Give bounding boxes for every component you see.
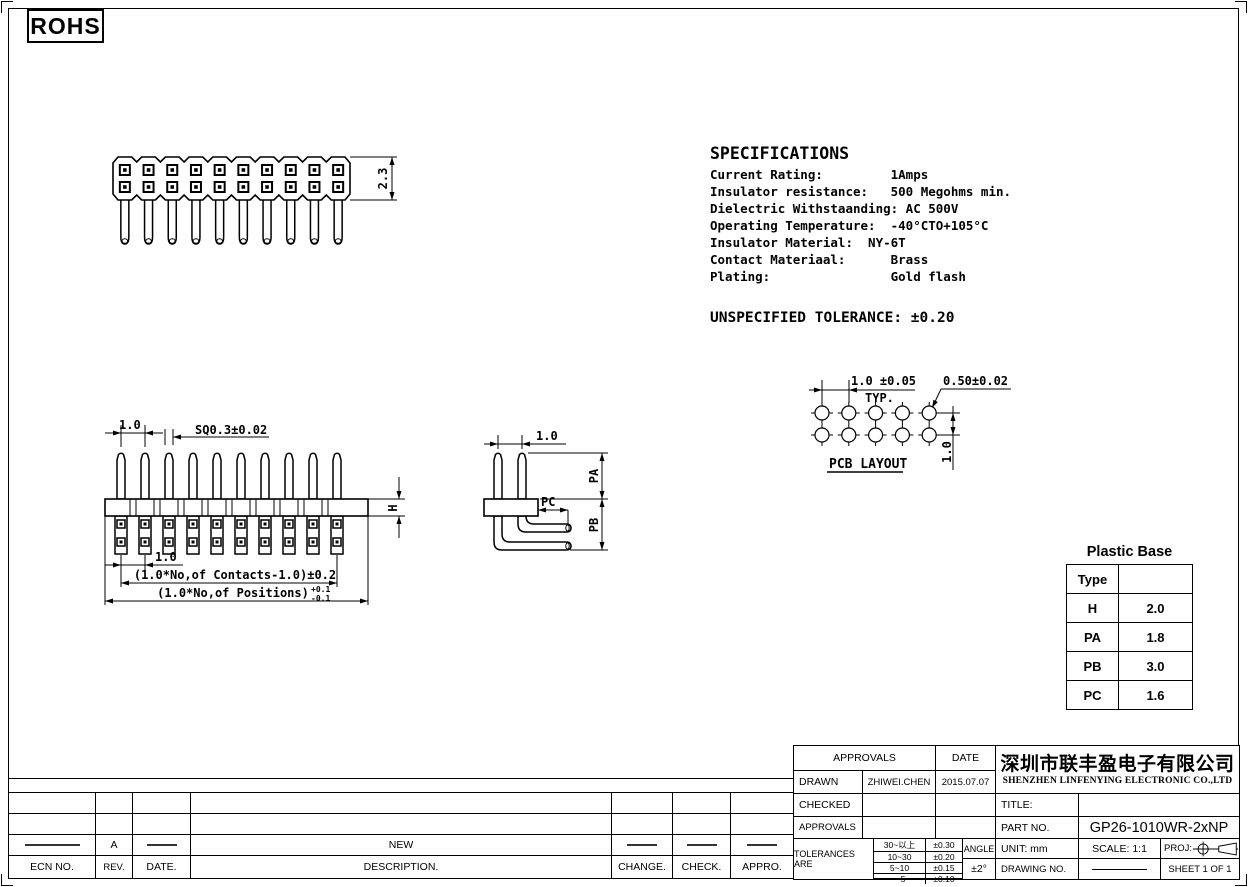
dimension-arrow	[145, 431, 153, 436]
insulator-base	[484, 499, 538, 516]
pin-end-center	[336, 541, 339, 544]
drill-hole	[815, 428, 829, 442]
dim-hole-pitch: 1.0 ±0.05	[851, 374, 916, 388]
spec-line: Current Rating: 1Amps	[710, 166, 1011, 183]
pin	[121, 198, 129, 244]
revision-table: A NEW ECN NO. REV. DATE. DESCRIPTION. CH…	[8, 778, 794, 879]
title-block: APPROVALS DATE DRAWN ZHIWEI.CHEN 2015.07…	[793, 745, 1239, 879]
pin	[287, 198, 295, 244]
dimension-arrow	[121, 581, 129, 586]
param-name: H	[1067, 594, 1119, 623]
pin-hole-center	[265, 185, 269, 189]
top-view: 2.3	[100, 143, 420, 268]
sheet-cell: SHEET 1 OF 1	[1160, 858, 1240, 880]
pin-tip	[217, 239, 223, 243]
param-value: 3.0	[1119, 652, 1193, 681]
checked-label: CHECKED	[793, 793, 863, 817]
title-value	[1078, 793, 1240, 817]
bent-pin-front	[518, 516, 571, 532]
pin-end-center	[120, 541, 123, 544]
checked-date	[935, 793, 996, 817]
tolerance-range: 5~10	[874, 863, 926, 874]
pin-end-center	[144, 541, 147, 544]
revision-check-line	[673, 835, 731, 856]
pin-hole-center	[218, 185, 222, 189]
dimension-arrow	[397, 491, 402, 499]
dim-pin-square: SQ0.3±0.02	[195, 423, 267, 437]
tolerance-range: 10~30	[874, 852, 926, 863]
pin-tip	[241, 239, 247, 243]
dim-pitch-top: 1.0	[119, 418, 141, 432]
pin-end-center	[336, 523, 339, 526]
revision-header-description: DESCRIPTION.	[191, 856, 612, 878]
pin	[309, 453, 317, 499]
revision-rev-value: A	[96, 835, 133, 856]
proj-cell: PROJ:	[1160, 838, 1240, 859]
revision-cell	[673, 793, 731, 814]
tolerance-value: ±0.10	[926, 874, 962, 884]
pin	[285, 453, 293, 499]
revision-cell	[9, 814, 96, 835]
company-cell: 深圳市联丰盈电子有限公司 SHENZHEN LINFENYING ELECTRO…	[995, 745, 1240, 794]
angle-label: ANGLE	[962, 838, 996, 859]
revision-header-appro: APPRO.	[731, 856, 793, 878]
pin-tip	[122, 239, 128, 243]
dim-pc: PC	[541, 495, 555, 509]
drill-hole	[815, 406, 829, 420]
revision-header-check: CHECK.	[673, 856, 731, 878]
pin-hole-center	[289, 168, 293, 172]
pin-hole-center	[170, 168, 174, 172]
pin-end-center	[288, 541, 291, 544]
company-name-cn: 深圳市联丰盈电子有限公司	[1000, 753, 1234, 776]
table-row: PB 3.0	[1067, 652, 1193, 681]
drill-hole	[922, 406, 936, 420]
pin-hole-center	[147, 185, 151, 189]
side-view: 1.0 PA PB PC	[462, 413, 627, 573]
pin-end-center	[240, 523, 243, 526]
revision-cell	[96, 814, 133, 835]
plastic-base-title: Plastic Base	[1066, 544, 1193, 560]
table-row: H 2.0	[1067, 594, 1193, 623]
dim-positions: (1.0*No,of Positions)	[157, 586, 309, 600]
pin-end-center	[216, 523, 219, 526]
dimension-arrow	[951, 413, 956, 421]
param-name: PA	[1067, 623, 1119, 652]
revision-cell	[673, 814, 731, 835]
param-value: 1.8	[1119, 623, 1193, 652]
part-no-label: PART NO.	[995, 816, 1079, 839]
spec-line: Insulator resistance: 500 Megohms min.	[710, 183, 1011, 200]
revision-header-rev: REV.	[96, 856, 133, 878]
plastic-base-table: Plastic Base Type H 2.0 PA 1.8 PB 3.0 PC…	[1066, 544, 1193, 710]
revision-cell	[612, 814, 673, 835]
revision-change-line	[612, 835, 673, 856]
dimension-arrow	[849, 388, 857, 393]
pin-hole-center	[336, 185, 340, 189]
dim-hole-diameter: 0.50±0.02	[943, 374, 1008, 388]
pin-tip	[193, 239, 199, 243]
spec-line: Operating Temperature: -40°CTO+105°C	[710, 217, 1011, 234]
tolerance-value: ±0.15	[926, 863, 962, 874]
pin-hole-center	[265, 168, 269, 172]
first-angle-projection-icon	[1193, 839, 1239, 859]
pin	[333, 453, 341, 499]
unit-cell: UNIT: mm	[995, 838, 1079, 859]
revision-cell	[731, 793, 793, 814]
pin-tip	[566, 543, 569, 549]
rohs-badge: ROHS	[27, 9, 104, 43]
tolerance-value: ±0.30	[926, 839, 962, 852]
pin-end-center	[120, 523, 123, 526]
pin-hole-center	[313, 185, 317, 189]
top-view-drawing	[113, 157, 397, 244]
pin-tip	[312, 239, 318, 243]
pin-end-center	[216, 541, 219, 544]
param-value	[1119, 565, 1193, 594]
table-row: PA 1.8	[1067, 623, 1193, 652]
pin-end-center	[264, 541, 267, 544]
pin-hole-center	[313, 168, 317, 172]
pin-end-center	[168, 541, 171, 544]
dim-positions-tol-lower: -0.1	[311, 594, 330, 603]
table-row: Type	[1067, 565, 1193, 594]
drill-hole	[869, 406, 883, 420]
title-label: TITLE:	[995, 793, 1079, 817]
dimension-arrow	[390, 192, 395, 200]
pin-hole-center	[147, 168, 151, 172]
pin-hole-center	[242, 168, 246, 172]
pin-end-center	[312, 541, 315, 544]
insulator-body	[113, 157, 350, 200]
pin	[261, 453, 269, 499]
pin	[165, 453, 173, 499]
dimension-arrow	[397, 516, 402, 524]
dim-contacts: (1.0*No,of Contacts-1.0)±0.2	[134, 568, 336, 582]
drawn-by: ZHIWEI.CHEN	[862, 770, 936, 794]
pin	[518, 453, 526, 499]
drawn-label: DRAWN	[793, 770, 863, 794]
revision-appro-line	[731, 835, 793, 856]
dimension-arrow	[360, 599, 368, 604]
pin-end-center	[240, 541, 243, 544]
revision-cell	[133, 814, 191, 835]
checked-by	[862, 793, 936, 817]
drawing-no-placeholder-line	[1092, 869, 1147, 870]
dim-pitch-bottom: 1.0	[155, 550, 177, 564]
revision-cell	[9, 793, 96, 814]
revision-header-change: CHANGE.	[612, 856, 673, 878]
pin-tip	[566, 525, 569, 531]
pin	[263, 198, 271, 244]
dim-pa: PA	[587, 468, 601, 483]
drawing-no-label: DRAWING NO.	[995, 858, 1079, 880]
pin-hole-center	[123, 185, 127, 189]
drill-hole	[842, 406, 856, 420]
pin-hole-center	[194, 168, 198, 172]
dim-pb: PB	[587, 518, 601, 532]
dimension-arrow	[145, 563, 153, 568]
revision-header-date: DATE.	[133, 856, 191, 878]
dimension-arrow	[951, 427, 956, 435]
pcb-layout-title: PCB LAYOUT	[829, 457, 907, 472]
approvals-header: APPROVALS	[793, 745, 936, 771]
revision-cell	[731, 814, 793, 835]
dim-hole-row-pitch: 1.0	[940, 441, 954, 463]
pin-tip	[335, 239, 341, 243]
pin	[117, 453, 125, 499]
proj-label: PROJ:	[1164, 843, 1192, 854]
corner-mark-top-left	[1, 1, 13, 13]
param-name: PB	[1067, 652, 1119, 681]
bent-pin-back	[494, 516, 571, 550]
pcb-layout-view: 1.0 ±0.05 TYP. 0.50±0.02 1.0 PCB LAYOUT	[793, 372, 1018, 490]
dim-body-height: 2.3	[376, 168, 390, 190]
revision-empty-band	[9, 779, 793, 793]
drawing-sheet: ROHS SPECIFICATIONS Current Rating: 1Amp…	[0, 0, 1248, 887]
drill-hole	[842, 428, 856, 442]
corner-mark-top-right	[1235, 1, 1247, 13]
pin-hole-center	[218, 168, 222, 172]
spec-line: Contact Materiaal: Brass	[710, 251, 1011, 268]
tolerance-range: ~ 5	[874, 874, 926, 884]
angle-value: ±2°	[962, 858, 996, 880]
date-header: DATE	[935, 745, 996, 771]
dim-hole-pitch-note: TYP.	[865, 391, 894, 405]
drawn-date: 2015.07.07	[935, 770, 996, 794]
revision-date-line	[133, 835, 191, 856]
pin	[213, 453, 221, 499]
pin	[141, 453, 149, 499]
dimension-arrow	[105, 599, 113, 604]
tolerance-range: 30~以上	[874, 839, 926, 852]
pin-hole-center	[336, 168, 340, 172]
drill-hole	[895, 406, 909, 420]
revision-header-ecn: ECN NO.	[9, 856, 96, 878]
revision-cell	[191, 814, 612, 835]
drill-hole	[869, 428, 883, 442]
revision-cell	[191, 793, 612, 814]
pin-end-center	[264, 523, 267, 526]
dimension-arrow	[173, 435, 181, 440]
param-name: Type	[1067, 565, 1119, 594]
pin-end-center	[192, 541, 195, 544]
approvals-label: APPROVALS	[793, 816, 863, 839]
tolerance-value: ±0.20	[926, 852, 962, 863]
revision-description-value: NEW	[191, 835, 612, 856]
pin-hole-center	[242, 185, 246, 189]
table-row: PC 1.6	[1067, 681, 1193, 710]
pin-end-center	[288, 523, 291, 526]
approvals-by	[862, 816, 936, 839]
pin-end-center	[312, 523, 315, 526]
param-value: 2.0	[1119, 594, 1193, 623]
dimension-arrow	[814, 388, 822, 393]
unspecified-tolerance-note: UNSPECIFIED TOLERANCE: ±0.20	[710, 310, 954, 326]
dim-positions-tol-upper: +0.1	[311, 585, 330, 594]
revision-cell	[96, 793, 133, 814]
dimension-arrow	[113, 563, 121, 568]
pin	[494, 453, 502, 499]
dim-row-pitch: 1.0	[536, 429, 558, 443]
pin	[237, 453, 245, 499]
param-value: 1.6	[1119, 681, 1193, 710]
insulator-base	[105, 499, 368, 516]
pin	[216, 198, 224, 244]
drill-hole	[895, 428, 909, 442]
pin	[239, 198, 247, 244]
tolerances-label: TOLERANCES ARE	[793, 838, 874, 880]
pin-tip	[288, 239, 294, 243]
pin	[192, 198, 200, 244]
spec-line: Dielectric Withstaanding: AC 500V	[710, 200, 1011, 217]
pin-hole-center	[194, 185, 198, 189]
param-name: PC	[1067, 681, 1119, 710]
pin-tip	[169, 239, 175, 243]
rohs-label: ROHS	[30, 13, 100, 40]
dimension-arrow	[390, 157, 395, 165]
specifications-block: SPECIFICATIONS Current Rating: 1Amps Ins…	[710, 144, 1011, 285]
pin-hole-center	[123, 168, 127, 172]
spec-line: Plating: Gold flash	[710, 268, 1011, 285]
drill-hole	[922, 428, 936, 442]
tolerance-table: 30~以上 ±0.30 10~30 ±0.20 5~10 ±0.15 ~ 5 ±…	[873, 838, 963, 880]
pin-hole-center	[170, 185, 174, 189]
scale-cell: SCALE: 1:1	[1078, 838, 1161, 859]
revision-cell	[133, 793, 191, 814]
pin-end-center	[192, 523, 195, 526]
pin	[168, 198, 176, 244]
pin-end-center	[168, 523, 171, 526]
pin	[310, 198, 318, 244]
front-view: 1.0 SQ0.3±0.02 H 1.0 (1.0*No,of Contacts…	[85, 413, 420, 613]
pin	[189, 453, 197, 499]
drawing-no-value	[1078, 858, 1161, 880]
revision-ecn-line	[9, 835, 96, 856]
pin-end-center	[144, 523, 147, 526]
pin	[145, 198, 153, 244]
specifications-title: SPECIFICATIONS	[710, 144, 1011, 163]
company-name-en: SHENZHEN LINFENYING ELECTRONIC CO.,LTD	[1003, 776, 1233, 786]
dimension-arrow	[932, 400, 938, 408]
pin-hole-center	[289, 185, 293, 189]
pin-tip	[146, 239, 152, 243]
pin-tip	[264, 239, 270, 243]
approvals-date	[935, 816, 996, 839]
pin	[334, 198, 342, 244]
dim-base-height: H	[386, 504, 400, 511]
spec-line: Insulator Material: NY-6T	[710, 234, 1011, 251]
part-no-value: GP26-1010WR-2xNP	[1078, 816, 1240, 839]
revision-cell	[612, 793, 673, 814]
